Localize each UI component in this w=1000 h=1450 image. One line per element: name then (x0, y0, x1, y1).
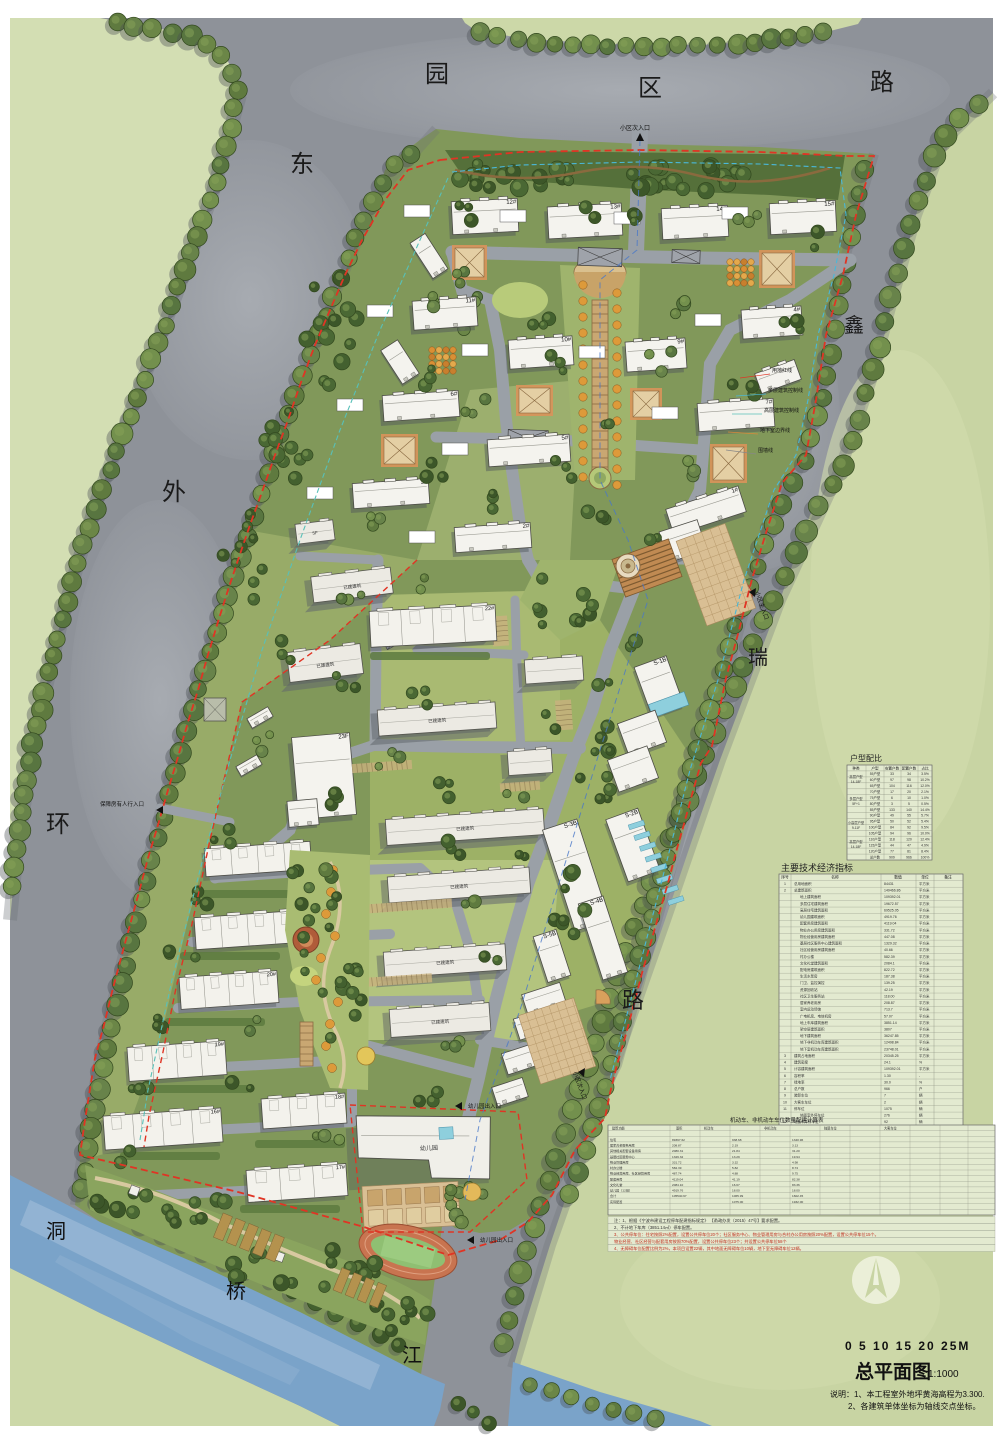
svg-text:90户型: 90户型 (870, 813, 881, 818)
svg-text:6#: 6# (450, 391, 458, 397)
svg-text:计容建筑面积: 计容建筑面积 (794, 1066, 815, 1071)
svg-text:22#: 22# (485, 606, 495, 613)
svg-text:40.66: 40.66 (884, 948, 893, 952)
svg-text:平方米: 平方米 (919, 908, 930, 913)
svg-text:地下非机动车库建筑面积: 地下非机动车库建筑面积 (800, 1040, 839, 1045)
svg-text:12#: 12# (506, 199, 517, 206)
svg-text:12.0%: 12.0% (920, 784, 930, 788)
svg-text:52: 52 (907, 820, 911, 824)
svg-text:东: 东 (290, 151, 314, 178)
svg-text:5.82: 5.82 (732, 1166, 738, 1170)
svg-text:9.5%: 9.5% (921, 826, 929, 830)
svg-text:7: 7 (884, 1094, 886, 1098)
svg-text:713.7: 713.7 (884, 1008, 893, 1012)
svg-text:配置户数: 配置户数 (902, 765, 917, 770)
svg-text:瑞: 瑞 (748, 646, 768, 669)
svg-text:物业经营、社区经营与配套用房按照70%配置，设置公共停车位2: 物业经营、社区经营与配套用房按照70%配置，设置公共停车位23个；共设置公共停车… (614, 1238, 787, 1245)
svg-text:1340.96: 1340.96 (792, 1138, 803, 1142)
svg-text:2、不计地下车库（3851.14㎡）停车配置。: 2、不计地下车库（3851.14㎡）停车配置。 (614, 1224, 694, 1231)
svg-text:2.1%: 2.1% (921, 790, 929, 794)
svg-text:安置户数: 安置户数 (885, 765, 900, 770)
svg-text:地下室边界线: 地下室边界线 (760, 427, 790, 434)
svg-text:115户型: 115户型 (869, 842, 882, 847)
svg-text:配电房建筑面积: 配电房建筑面积 (800, 967, 825, 972)
svg-text:116: 116 (906, 784, 912, 788)
svg-text:582.39: 582.39 (672, 1166, 682, 1170)
svg-text:30.0: 30.0 (884, 1080, 891, 1084)
svg-text:机动车: 机动车 (704, 1126, 714, 1131)
svg-text:187.38: 187.38 (884, 975, 895, 979)
svg-text:822.72: 822.72 (884, 968, 895, 972)
svg-text:10: 10 (907, 796, 911, 800)
svg-text:平方米: 平方米 (919, 1020, 930, 1025)
svg-text:多层建筑控制线: 多层建筑控制线 (768, 387, 803, 394)
svg-text:57.07: 57.07 (884, 1014, 893, 1018)
svg-text:14.4%: 14.4% (920, 808, 930, 812)
svg-text:7#: 7# (765, 399, 773, 405)
svg-text:平方米: 平方米 (919, 941, 930, 946)
svg-text:75户型: 75户型 (870, 795, 881, 800)
svg-text:109392.01: 109392.01 (884, 895, 901, 899)
svg-text:园: 园 (425, 61, 449, 88)
svg-text:10#: 10# (561, 337, 572, 344)
svg-text:331.72: 331.72 (884, 928, 895, 932)
svg-text:路: 路 (870, 69, 894, 96)
svg-text:109392.01: 109392.01 (884, 1067, 901, 1071)
svg-text:208.87: 208.87 (672, 1144, 682, 1148)
svg-text:广电机房、电信机房: 广电机房、电信机房 (800, 1013, 832, 1018)
svg-text:平方米: 平方米 (919, 987, 930, 992)
svg-text:1932.00: 1932.00 (792, 1200, 803, 1204)
svg-text:辆: 辆 (919, 1099, 923, 1104)
svg-text:平方米: 平方米 (919, 1027, 930, 1032)
svg-text:33: 33 (890, 772, 894, 776)
svg-text:4119.04: 4119.04 (884, 922, 896, 926)
svg-text:139.25: 139.25 (884, 981, 895, 985)
svg-text:4、无障碍车位配置比例为2%，本项目设置22辆，其中地面无障: 4、无障碍车位配置比例为2%，本项目设置22辆，其中地面无障碍车位10辆，地下室… (614, 1245, 804, 1252)
svg-text:447.08: 447.08 (884, 935, 895, 939)
svg-text:120: 120 (906, 838, 912, 842)
svg-text:桥: 桥 (226, 1280, 246, 1303)
svg-text:鑫: 鑫 (844, 314, 864, 337)
svg-text:地下室机动车库建筑面积: 地下室机动车库建筑面积 (800, 1046, 839, 1051)
svg-text:其他相关配套设备用房: 其他相关配套设备用房 (610, 1148, 641, 1153)
svg-text:机动车、非机动车车位数量配建计算表: 机动车、非机动车车位数量配建计算表 (730, 1116, 824, 1124)
svg-text:3: 3 (891, 802, 893, 806)
svg-text:路: 路 (622, 988, 644, 1013)
svg-text:小区次入口: 小区次入口 (620, 124, 650, 132)
svg-text:容积率: 容积率 (794, 1073, 805, 1078)
svg-text:18#: 18# (335, 1094, 346, 1101)
svg-text:辆: 辆 (919, 1119, 923, 1124)
svg-text:绿地率: 绿地率 (794, 1079, 805, 1084)
svg-text:13.29: 13.29 (732, 1155, 740, 1159)
svg-text:81: 81 (907, 849, 911, 853)
svg-text:停车位: 停车位 (794, 1106, 805, 1111)
svg-text:2#: 2# (522, 523, 530, 529)
svg-text:平方米: 平方米 (919, 1066, 930, 1071)
svg-text:配套用房: 配套用房 (610, 1176, 622, 1181)
svg-text:地上建筑面积: 地上建筑面积 (800, 894, 821, 899)
svg-text:0.5%: 0.5% (921, 802, 929, 806)
svg-text:1:1000: 1:1000 (928, 1369, 959, 1380)
svg-text:85户型: 85户型 (870, 807, 881, 812)
svg-text:3807: 3807 (884, 1028, 892, 1032)
svg-text:8.74: 8.74 (792, 1166, 798, 1170)
svg-text:平方米: 平方米 (919, 1053, 930, 1058)
svg-text:8.4%: 8.4% (921, 849, 929, 853)
svg-text:2: 2 (884, 1100, 886, 1104)
svg-text:4919.76: 4919.76 (884, 915, 897, 919)
svg-text:总用地面积: 总用地面积 (794, 881, 812, 886)
svg-text:资源回收站: 资源回收站 (800, 987, 818, 992)
svg-text:物业经营用房、社区经营用房: 物业经营用房、社区经营用房 (610, 1171, 650, 1176)
svg-text:118: 118 (889, 838, 895, 842)
svg-text:21.84: 21.84 (732, 1149, 740, 1153)
svg-text:物业办公用房建筑面积: 物业办公用房建筑面积 (800, 927, 835, 932)
svg-text:110户型: 110户型 (869, 837, 882, 842)
svg-text:主要技术经济指标: 主要技术经济指标 (781, 862, 853, 873)
svg-text:16#: 16# (211, 1109, 222, 1116)
svg-text:96: 96 (907, 832, 911, 836)
svg-text:1.0%: 1.0% (921, 796, 929, 800)
svg-text:辆: 辆 (919, 1106, 923, 1111)
svg-text:围墙线: 围墙线 (758, 447, 773, 454)
svg-text:户型: 户型 (871, 765, 879, 770)
svg-text:平方米: 平方米 (919, 927, 930, 932)
svg-text:高层户型: 高层户型 (849, 774, 863, 779)
svg-text:1075: 1075 (884, 1107, 892, 1111)
svg-text:平方米: 平方米 (919, 1033, 930, 1038)
svg-text:文化礼堂: 文化礼堂 (610, 1182, 622, 1187)
svg-text:140: 140 (906, 808, 912, 812)
svg-text:3: 3 (784, 1054, 786, 1058)
svg-text:1.30: 1.30 (884, 1074, 891, 1078)
svg-text:生活水泵房: 生活水泵房 (800, 974, 818, 979)
svg-text:60户型: 60户型 (870, 777, 881, 782)
svg-text:住宅: 住宅 (610, 1137, 616, 1142)
svg-text:4#: 4# (793, 307, 801, 313)
svg-text:6: 6 (784, 1074, 786, 1078)
svg-text:5#: 5# (561, 435, 569, 441)
svg-text:17: 17 (890, 790, 894, 794)
svg-text:5F+1: 5F+1 (852, 802, 860, 806)
svg-text:%: % (919, 1061, 922, 1065)
svg-text:966: 966 (884, 1087, 890, 1091)
svg-text:合计: 合计 (610, 1193, 616, 1198)
svg-text:208.87: 208.87 (884, 1001, 895, 1005)
svg-text:高层住宅建筑面积: 高层住宅建筑面积 (800, 908, 828, 913)
svg-text:5: 5 (908, 802, 910, 806)
svg-text:辆: 辆 (919, 1093, 923, 1098)
svg-text:2080.31: 2080.31 (672, 1149, 683, 1153)
svg-text:966: 966 (906, 855, 912, 859)
svg-text:地上车库建筑面积: 地上车库建筑面积 (800, 1020, 828, 1025)
svg-text:总平面图: 总平面图 (855, 1360, 931, 1383)
svg-text:面积: 面积 (676, 1126, 683, 1131)
svg-text:19672.57: 19672.57 (884, 902, 899, 906)
svg-text:外: 外 (162, 479, 186, 506)
svg-text:4.9%: 4.9% (921, 843, 929, 847)
svg-text:80户型: 80户型 (870, 801, 881, 806)
svg-text:4919.76: 4919.76 (672, 1189, 683, 1193)
svg-text:居家养老用房: 居家养老用房 (800, 1000, 821, 1005)
svg-text:平方米: 平方米 (919, 1046, 930, 1051)
svg-text:非机动车: 非机动车 (764, 1126, 777, 1131)
svg-text:社区经营用房建筑面积: 社区经营用房建筑面积 (800, 947, 835, 952)
svg-text:100户型: 100户型 (869, 825, 882, 830)
svg-text:69525.05: 69525.05 (884, 909, 899, 913)
svg-text:平方米: 平方米 (919, 967, 930, 972)
svg-text:20: 20 (907, 790, 911, 794)
svg-text:83.36: 83.36 (792, 1183, 800, 1187)
svg-text:3.5%: 3.5% (921, 772, 929, 776)
svg-text:平方米: 平方米 (919, 947, 930, 952)
svg-text:1329.32: 1329.32 (884, 942, 897, 946)
svg-text:2.19: 2.19 (732, 1144, 738, 1148)
svg-text:487.74: 487.74 (672, 1172, 682, 1176)
svg-text:44: 44 (890, 843, 894, 847)
svg-text:19#: 19# (215, 1042, 226, 1049)
svg-text:42.19: 42.19 (884, 988, 893, 992)
svg-text:2、各建筑单体坐标为轴线交点坐标。: 2、各建筑单体坐标为轴线交点坐标。 (848, 1401, 980, 1411)
svg-text:5.7%: 5.7% (921, 814, 929, 818)
svg-text:105户型: 105户型 (869, 831, 882, 836)
svg-text:331.72: 331.72 (672, 1161, 682, 1165)
svg-text:平方米: 平方米 (919, 954, 930, 959)
svg-text:平方米: 平方米 (919, 888, 930, 893)
svg-text:15#: 15# (824, 201, 835, 208)
svg-text:幼儿园出入口: 幼儿园出入口 (468, 1102, 501, 1110)
svg-text:105540.97: 105540.97 (672, 1194, 687, 1198)
svg-text:装卸车位: 装卸车位 (794, 1093, 808, 1098)
svg-text:92: 92 (884, 1120, 888, 1124)
svg-text:89397.62: 89397.62 (672, 1138, 685, 1142)
svg-text:室内运动场馆: 室内运动场馆 (800, 1007, 821, 1012)
svg-text:总建筑面积: 总建筑面积 (794, 888, 812, 893)
svg-text:10: 10 (783, 1100, 787, 1104)
svg-text:98: 98 (907, 778, 911, 782)
svg-text:16.67: 16.67 (732, 1183, 740, 1187)
svg-text:江: 江 (402, 1344, 422, 1367)
svg-text:备注: 备注 (944, 875, 952, 880)
svg-text:1065.99: 1065.99 (732, 1194, 743, 1198)
svg-text:20345.25: 20345.25 (884, 1054, 899, 1058)
svg-text:95户型: 95户型 (870, 819, 881, 824)
svg-text:独屏车位: 独屏车位 (824, 1126, 838, 1131)
svg-text:5F: 5F (312, 530, 318, 536)
svg-text:12.4%: 12.4% (920, 838, 930, 842)
svg-text:户型配比: 户型配比 (850, 753, 882, 763)
svg-text:种类: 种类 (852, 765, 860, 770)
svg-text:70户型: 70户型 (870, 789, 881, 794)
svg-text:582.39: 582.39 (884, 955, 895, 959)
svg-text:多层户型: 多层户型 (849, 796, 863, 801)
svg-text:20#: 20# (267, 972, 278, 979)
svg-text:10.0%: 10.0% (920, 832, 930, 836)
svg-text:平方米: 平方米 (919, 914, 930, 919)
svg-text:文化礼堂建筑面积: 文化礼堂建筑面积 (800, 960, 828, 965)
svg-text:11#: 11# (465, 298, 476, 305)
svg-text:平方米: 平方米 (919, 921, 930, 926)
svg-text:133: 133 (889, 808, 895, 812)
svg-text:村办公楼: 村办公楼 (800, 954, 814, 959)
svg-text:13#: 13# (610, 204, 621, 211)
svg-text:小高层户型: 小高层户型 (848, 820, 865, 825)
svg-text:平方米: 平方米 (919, 1007, 930, 1012)
svg-text:104: 104 (889, 784, 895, 788)
svg-text:6: 6 (891, 796, 893, 800)
svg-text:辆: 辆 (919, 1113, 923, 1118)
svg-text:5: 5 (784, 1067, 786, 1071)
svg-text:1: 1 (784, 882, 786, 886)
svg-text:9#: 9# (677, 339, 685, 345)
svg-text:2084.10: 2084.10 (672, 1183, 683, 1187)
svg-text:5.4%: 5.4% (921, 820, 929, 824)
svg-text:1602.45: 1602.45 (792, 1194, 803, 1198)
svg-text:居家养老服务用房: 居家养老服务用房 (610, 1143, 635, 1148)
svg-text:单位: 单位 (921, 875, 929, 880)
svg-text:建筑功能: 建筑功能 (612, 1126, 626, 1131)
svg-text:77: 77 (890, 849, 894, 853)
svg-text:基层社区服务中心: 基层社区服务中心 (610, 1154, 635, 1159)
svg-text:4.88: 4.88 (732, 1172, 738, 1176)
svg-text:9: 9 (784, 1094, 786, 1098)
svg-text:909: 909 (889, 855, 895, 859)
svg-text:总户数: 总户数 (794, 1086, 805, 1091)
svg-text:用地红线: 用地红线 (772, 367, 792, 374)
svg-text:3.13: 3.13 (792, 1144, 798, 1148)
svg-text:说明：1、本工程室外地坪黄海高程为3.300.: 说明：1、本工程室外地坪黄海高程为3.300. (830, 1389, 985, 1399)
svg-text:47: 47 (907, 843, 911, 847)
svg-text:34: 34 (907, 772, 911, 776)
svg-text:18.00: 18.00 (732, 1189, 740, 1193)
svg-text:41.19: 41.19 (732, 1177, 740, 1181)
svg-text:幼儿园出入口: 幼儿园出入口 (480, 1236, 513, 1244)
svg-text:19.94: 19.94 (792, 1155, 800, 1159)
svg-text:97: 97 (890, 778, 894, 782)
svg-text:49: 49 (890, 814, 894, 818)
svg-text:架空层建筑面积: 架空层建筑面积 (800, 1027, 825, 1032)
svg-text:平方米: 平方米 (919, 901, 930, 906)
svg-text:10.2%: 10.2% (920, 778, 930, 782)
svg-text:幼儿园（12班）: 幼儿园（12班） (610, 1188, 632, 1193)
svg-text:建筑占地面积: 建筑占地面积 (794, 1053, 815, 1058)
svg-text:82.38: 82.38 (792, 1177, 800, 1181)
svg-text:平方米: 平方米 (919, 974, 930, 979)
svg-text:8: 8 (784, 1087, 786, 1091)
svg-text:1075.00: 1075.00 (732, 1200, 743, 1204)
svg-text:洞: 洞 (46, 1220, 66, 1243)
svg-text:地面室外停车位: 地面室外停车位 (800, 1113, 825, 1118)
svg-text:9.75: 9.75 (792, 1172, 798, 1176)
svg-text:3、公共停车位：住宅按照2%配置，设置公共停车位20个；社区: 3、公共停车位：住宅按照2%配置，设置公共停车位20个；社区服务中心、物业管理用… (614, 1231, 879, 1238)
svg-text:配套用房建筑面积: 配套用房建筑面积 (800, 921, 828, 926)
svg-text:94: 94 (890, 832, 894, 836)
svg-text:14-18F: 14-18F (851, 845, 861, 849)
svg-text:2084.1: 2084.1 (884, 961, 895, 965)
svg-text:大客车车位: 大客车车位 (794, 1099, 812, 1104)
svg-text:门卫、监控演控: 门卫、监控演控 (800, 980, 825, 985)
svg-text:23F: 23F (338, 734, 349, 741)
svg-text:65户型: 65户型 (870, 783, 881, 788)
svg-text:31.20: 31.20 (792, 1149, 800, 1153)
svg-text:14-18F: 14-18F (851, 780, 861, 784)
svg-text:名称: 名称 (831, 875, 839, 880)
svg-text:物业经营用房建筑面积: 物业经营用房建筑面积 (800, 934, 835, 939)
svg-text:18.00: 18.00 (792, 1189, 800, 1193)
svg-text:村办公楼: 村办公楼 (610, 1165, 622, 1170)
svg-text:平方米: 平方米 (919, 894, 930, 899)
svg-text:保障房有人行入口: 保障房有人行入口 (100, 800, 144, 808)
svg-text:36247.85: 36247.85 (884, 1034, 899, 1038)
svg-text:276: 276 (884, 1114, 890, 1118)
svg-text:实际配置: 实际配置 (610, 1199, 622, 1204)
svg-text:92: 92 (907, 826, 911, 830)
svg-text:11: 11 (783, 1107, 787, 1111)
svg-text:占比: 占比 (921, 765, 929, 770)
svg-text:23748.01: 23748.01 (884, 1047, 899, 1051)
svg-text:4119.04: 4119.04 (672, 1177, 683, 1181)
svg-text:50: 50 (890, 820, 894, 824)
svg-text:平方米: 平方米 (919, 934, 930, 939)
svg-text:环: 环 (46, 811, 70, 838)
svg-text:17#: 17# (336, 1165, 347, 1172)
svg-text:平方米: 平方米 (919, 960, 930, 965)
svg-text:100%: 100% (921, 855, 930, 859)
svg-text:149466.86: 149466.86 (884, 889, 901, 893)
svg-text:84431: 84431 (884, 882, 894, 886)
svg-text:118.00: 118.00 (884, 994, 894, 998)
svg-text:高层户型: 高层户型 (849, 839, 863, 844)
svg-text:55户型: 55户型 (870, 771, 881, 776)
svg-text:平方米: 平方米 (919, 980, 930, 985)
svg-text:幼儿园建筑面积: 幼儿园建筑面积 (800, 914, 825, 919)
svg-text:注：1、根据《宁波市建设工程停车配建指标规定》 【甬政办发（: 注：1、根据《宁波市建设工程停车配建指标规定》 【甬政办发（2015）47号】要… (614, 1217, 782, 1224)
svg-text:数值: 数值 (894, 875, 902, 880)
svg-text:12498.84: 12498.84 (884, 1041, 899, 1045)
svg-text:%: % (919, 1080, 922, 1084)
svg-text:938.68: 938.68 (732, 1138, 742, 1142)
svg-text:84: 84 (890, 826, 894, 830)
svg-text:建筑密度: 建筑密度 (794, 1060, 808, 1065)
svg-text:平方米: 平方米 (919, 1040, 930, 1045)
svg-text:7: 7 (784, 1080, 786, 1084)
svg-text:地下建筑面积: 地下建筑面积 (800, 1033, 821, 1038)
svg-text:平方米: 平方米 (919, 881, 930, 886)
svg-text:平方米: 平方米 (919, 993, 930, 998)
svg-text:基层社区服务中心建筑面积: 基层社区服务中心建筑面积 (800, 941, 842, 946)
svg-text:区: 区 (638, 75, 662, 102)
svg-text:4.98: 4.98 (792, 1161, 798, 1165)
svg-text:2: 2 (784, 889, 786, 893)
svg-text:平方米: 平方米 (919, 1000, 930, 1005)
svg-text:平方米: 平方米 (919, 1013, 930, 1018)
svg-text:24.1: 24.1 (884, 1061, 891, 1065)
svg-text:0 5 10 15 20 25M: 0 5 10 15 20 25M (845, 1339, 970, 1353)
svg-text:总户数: 总户数 (870, 854, 881, 859)
svg-text:120户型: 120户型 (869, 848, 882, 853)
svg-text:1329.32: 1329.32 (672, 1155, 683, 1159)
svg-text:大客车位: 大客车位 (884, 1126, 898, 1131)
svg-text:4: 4 (784, 1061, 786, 1065)
svg-text:3.32: 3.32 (732, 1161, 738, 1165)
svg-text:55: 55 (907, 814, 911, 818)
svg-text:户: 户 (919, 1086, 923, 1091)
svg-text:多层住宅建筑面积: 多层住宅建筑面积 (800, 901, 828, 906)
svg-text:3851.14: 3851.14 (884, 1021, 897, 1025)
svg-text:社区卫生服务站: 社区卫生服务站 (800, 993, 825, 998)
